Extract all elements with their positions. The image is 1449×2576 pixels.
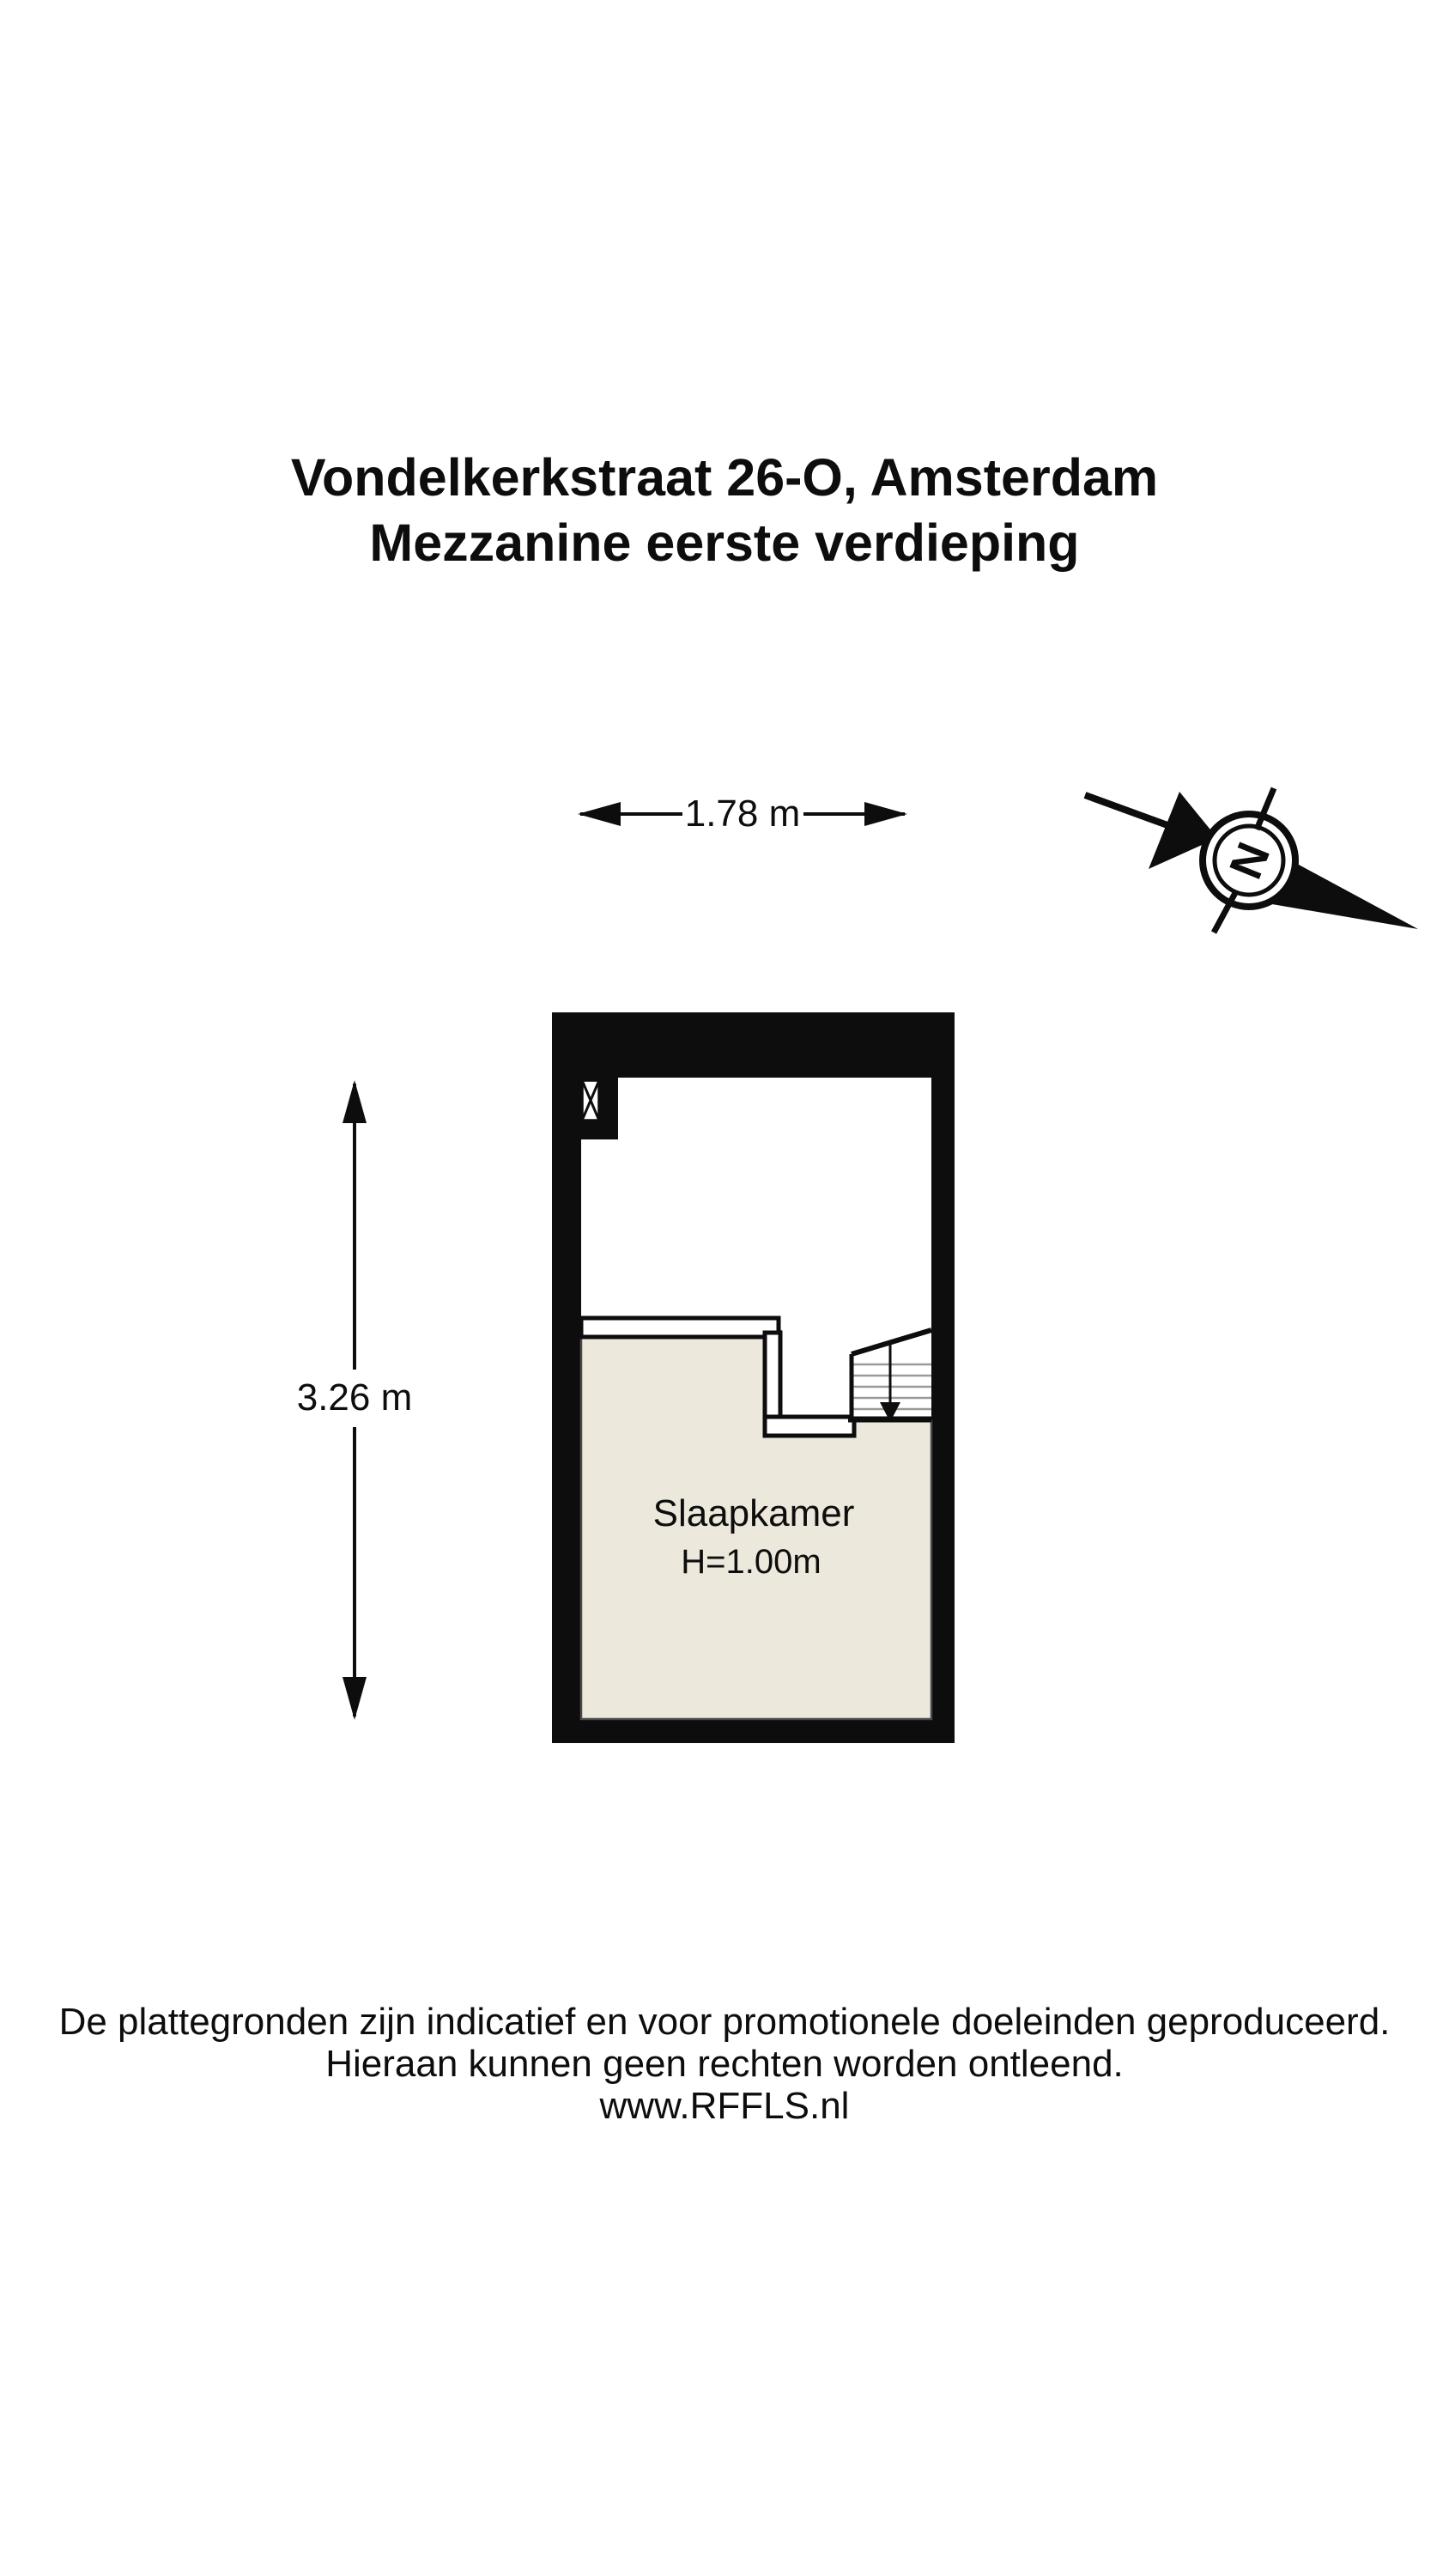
- dimension-height-label: 3.26 m: [297, 1376, 413, 1419]
- arrowhead-up-icon: [343, 1080, 367, 1123]
- interior-wall-vertical: [765, 1333, 780, 1421]
- dimension-width: 1.78 m: [578, 793, 907, 835]
- disclaimer: De plattegronden zijn indicatief en voor…: [0, 2001, 1449, 2127]
- disclaimer-line1: De plattegronden zijn indicatief en voor…: [0, 2001, 1449, 2043]
- interior-wall-horizontal-lower: [765, 1417, 854, 1436]
- wall-right: [931, 1012, 955, 1743]
- room-ceiling-height-label: H=1.00m: [681, 1543, 821, 1581]
- floorplan-page: Vondelkerkstraat 26-O, Amsterdam Mezzani…: [0, 0, 1449, 2576]
- shaft-symbol: [582, 1080, 599, 1121]
- staircase: [848, 1330, 931, 1422]
- disclaimer-website: www.RFFLS.nl: [0, 2085, 1449, 2127]
- arrowhead-left-icon: [578, 802, 621, 826]
- floorplan-drawing: 1.78 m 3.26 m Slaapkamer H=1.00m N: [0, 0, 1449, 2576]
- dimension-height: 3.26 m: [297, 1080, 413, 1720]
- wall-bottom: [552, 1719, 955, 1743]
- compass-north-icon: N: [1085, 788, 1418, 933]
- arrowhead-down-icon: [343, 1677, 367, 1720]
- room-name-label: Slaapkamer: [653, 1492, 855, 1534]
- arrowhead-right-icon: [864, 802, 907, 826]
- disclaimer-line2: Hieraan kunnen geen rechten worden ontle…: [0, 2043, 1449, 2085]
- dimension-width-label: 1.78 m: [685, 793, 801, 835]
- interior-wall-horizontal-upper: [581, 1318, 779, 1337]
